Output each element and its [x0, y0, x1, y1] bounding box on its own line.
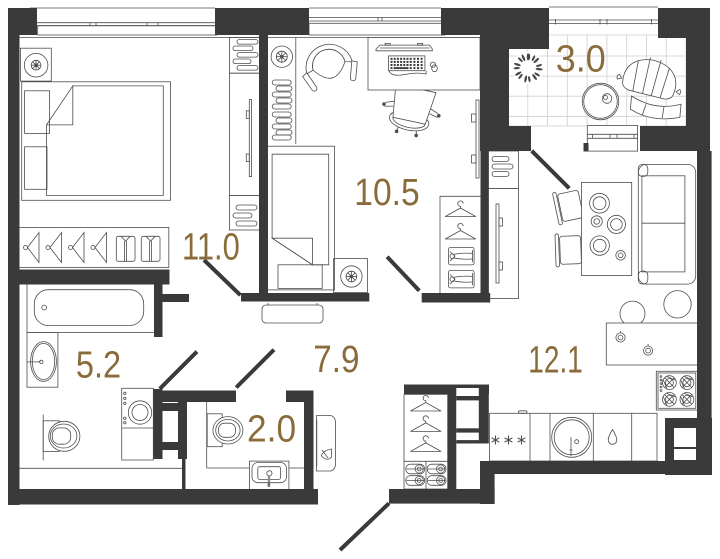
svg-text:5.2: 5.2 [76, 345, 121, 387]
svg-text:12.1: 12.1 [528, 340, 583, 382]
svg-text:3.0: 3.0 [556, 39, 606, 81]
svg-text:7.9: 7.9 [313, 339, 359, 381]
svg-text:11.0: 11.0 [182, 227, 240, 269]
svg-text:2.0: 2.0 [247, 409, 296, 451]
svg-text:10.5: 10.5 [354, 172, 419, 214]
